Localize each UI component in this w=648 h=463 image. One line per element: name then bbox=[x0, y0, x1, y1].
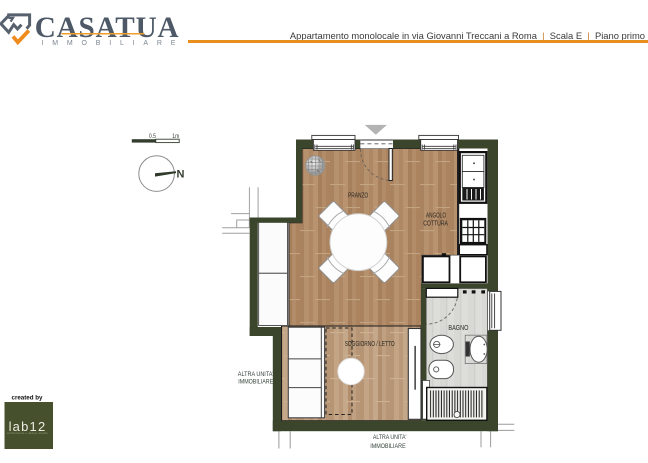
svg-text:PRANZO: PRANZO bbox=[348, 190, 368, 199]
svg-text:IMMOBILIARE: IMMOBILIARE bbox=[238, 378, 273, 385]
svg-text:1m: 1m bbox=[172, 134, 179, 140]
svg-text:ALTRA UNITA': ALTRA UNITA' bbox=[373, 434, 407, 441]
svg-text:ALTRA UNITA': ALTRA UNITA' bbox=[238, 371, 274, 378]
svg-text:created by: created by bbox=[12, 395, 44, 402]
svg-text:BAGNO: BAGNO bbox=[448, 325, 469, 332]
svg-text:COTTURA: COTTURA bbox=[423, 219, 448, 228]
svg-text:architettura e design studio: architettura e design studio bbox=[7, 431, 48, 435]
svg-text:IMMOBILIARE: IMMOBILIARE bbox=[370, 443, 406, 450]
svg-text:N: N bbox=[177, 169, 185, 181]
svg-text:0.5: 0.5 bbox=[149, 134, 156, 140]
svg-text:SOGGIORNO / LETTO: SOGGIORNO / LETTO bbox=[345, 341, 395, 348]
